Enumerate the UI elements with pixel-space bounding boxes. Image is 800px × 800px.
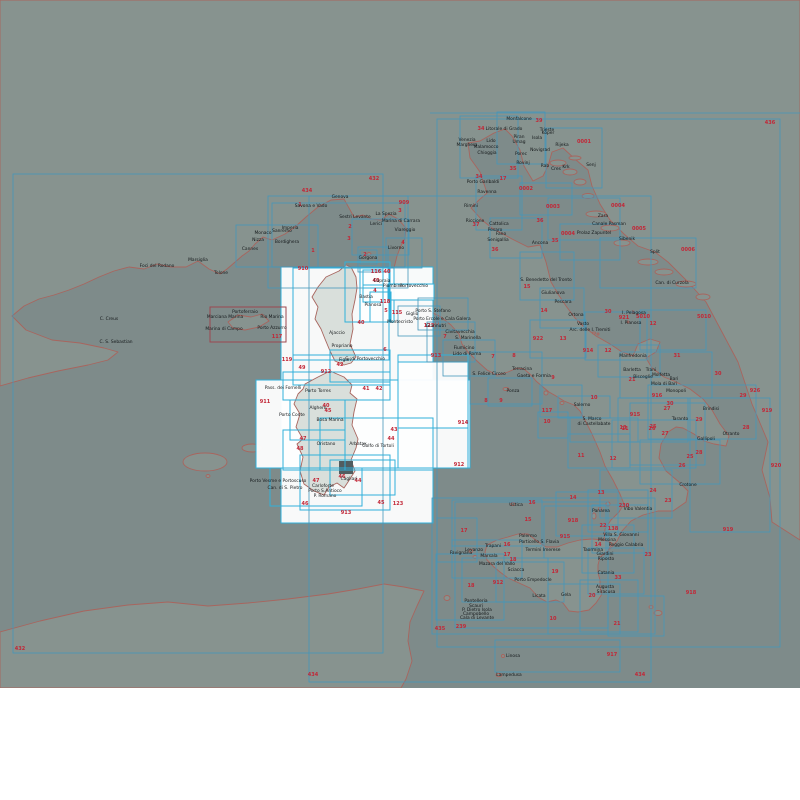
chart-number: 40 (358, 320, 365, 326)
chart-number: 10 (591, 395, 598, 401)
nautical-chart-index-map: 4324324344344344364352399179099109119129… (0, 0, 800, 688)
chart-number: 47 (300, 436, 307, 442)
place-label: Porto Conte (279, 412, 305, 418)
place-label: Bordighera (275, 239, 300, 245)
place-label: Foci del Rodano (140, 263, 175, 269)
place-label: Krk (562, 164, 570, 170)
small-island (544, 391, 548, 395)
place-label: Senigallia (487, 237, 509, 243)
place-label: Ravenna (477, 189, 497, 195)
place-label: Molfetta (652, 372, 670, 378)
chart-number: 914 (583, 348, 594, 354)
place-label: Palermo (519, 533, 537, 539)
place-label: Marsiglia (188, 257, 208, 263)
place-label: Gallipoli (697, 436, 715, 442)
chart-number: 239 (456, 624, 467, 630)
place-label: Cala di Levante (460, 615, 494, 621)
place-label: Imperia (282, 225, 299, 231)
chart-number: 0002 (519, 186, 533, 192)
chart-number: 26 (679, 463, 686, 469)
chart-number: 40 (384, 269, 391, 275)
place-label: Riccione (466, 218, 485, 224)
chart-number: 910 (298, 266, 309, 272)
place-label: Porticello S. Flavia (519, 539, 559, 545)
place-label: Propriano (332, 343, 353, 349)
place-label: Bisceglie (633, 374, 653, 380)
place-label: Favignana (450, 550, 473, 556)
chart-number: 138 (608, 526, 619, 532)
place-label: Montecristo (387, 319, 413, 325)
chart-number: 8 (484, 398, 488, 404)
chart-number: 911 (260, 399, 271, 405)
place-label: Monopoli (666, 388, 686, 394)
chart-number: 4 (373, 288, 377, 294)
place-label: Cagliari (341, 476, 358, 482)
place-label: Manfredonia (619, 353, 647, 359)
place-label: Lido di Roma (453, 351, 482, 357)
small-island (183, 453, 227, 471)
place-label: Brindisi (703, 406, 719, 412)
chart-number: 31 (674, 353, 681, 359)
chart-number: 3 (347, 236, 351, 242)
place-label: Umag (513, 139, 526, 145)
chart-number: 0003 (546, 204, 560, 210)
place-label: Marsala (480, 553, 497, 559)
place-label: Taranto (671, 416, 689, 422)
chart-number: 9 (499, 398, 503, 404)
chart-number: 23 (665, 498, 672, 504)
chart-number: 434 (302, 188, 313, 194)
chart-number: 16 (504, 542, 511, 548)
chart-number: 912 (321, 369, 332, 375)
chart-number: 123 (393, 501, 404, 507)
place-label: Porto Ercole e Cala Galera (413, 316, 471, 322)
chart-number: 432 (15, 646, 26, 652)
place-label: Litorale di Grado (486, 126, 523, 132)
place-label: Porto Empedocle (514, 577, 551, 583)
chart-number: 46 (302, 501, 309, 507)
chart-number: 918 (568, 518, 579, 524)
place-label: Ustica (509, 502, 523, 508)
place-label: Giannutri (426, 323, 446, 329)
place-label: Porto Azzurro (257, 325, 287, 331)
chart-number: 914 (458, 420, 469, 426)
place-label: Monfalcone (506, 116, 532, 122)
place-label: Gela (561, 592, 571, 598)
place-label: Sibenik (619, 236, 635, 242)
chart-number: 913 (431, 353, 442, 359)
chart-number: 24 (650, 488, 657, 494)
place-label: Portovecchio (400, 283, 429, 289)
chart-number: 20 (589, 593, 596, 599)
place-label: Bosa Marina (316, 417, 343, 423)
place-label: Termini Imerese (525, 547, 561, 553)
place-label: I. Pelagosa (622, 310, 646, 316)
place-label: Livorno (388, 245, 404, 251)
chart-number: 918 (686, 590, 697, 596)
place-label: Rio Marina (260, 314, 284, 320)
chart-number: 41 (363, 386, 370, 392)
chart-number: 30 (605, 309, 612, 315)
chart-number: 913 (341, 510, 352, 516)
place-label: Marciana Marina (207, 314, 244, 320)
place-label: Chioggia (477, 150, 497, 156)
chart-number: 434 (635, 672, 646, 678)
place-label: Siracusa (597, 589, 616, 595)
chart-number: 6 (383, 347, 387, 353)
place-label: Nizza (252, 237, 264, 243)
place-label: Otranto (723, 431, 740, 437)
place-label: Reggio Calabria (609, 542, 644, 548)
place-label: Salerno (574, 402, 591, 408)
place-label: S. Marinella (455, 335, 481, 341)
place-label: Oristano (317, 441, 336, 447)
place-label: Sciacca (508, 567, 525, 573)
chart-number: 12 (610, 456, 617, 462)
place-label: Gorgona (359, 255, 378, 261)
place-label: S. Felice Circeo (472, 371, 506, 377)
chart-number: 0006 (681, 247, 695, 253)
chart-number: 5010 (697, 314, 711, 320)
place-label: Golfo di Tortoli (362, 443, 394, 449)
chart-number: 1 (311, 248, 315, 254)
chart-number: 0004 (561, 231, 575, 237)
place-label: Prolaz Zapuntel (577, 230, 611, 236)
chart-number: 7 (491, 354, 495, 360)
place-label: Licata (532, 593, 545, 599)
chart-number: 30 (667, 401, 674, 407)
chart-number: 17 (461, 528, 468, 534)
chart-number: 36 (492, 247, 499, 253)
place-label: Civitavecchia (445, 329, 475, 335)
chart-number: 27 (662, 431, 669, 437)
small-island (502, 655, 505, 658)
place-label: Fano (496, 231, 507, 237)
place-label: Senj (586, 162, 596, 168)
place-label: Vibo Valentia (624, 506, 653, 512)
place-label: C. Creus (100, 316, 119, 322)
place-label: S. Benedetto del Tronto (520, 277, 572, 283)
place-label: Trapani (484, 543, 501, 549)
chart-number: 10 (550, 616, 557, 622)
place-label: Can. di S. Pietro (268, 485, 303, 491)
place-label: La Spezia (375, 211, 396, 217)
chart-number: 436 (765, 120, 776, 126)
chart-number: 44 (388, 436, 395, 442)
place-label: Can. di Curzola (655, 280, 689, 286)
place-label: Viareggio (395, 227, 416, 233)
chart-number: 117 (272, 334, 283, 340)
small-island (655, 269, 673, 275)
place-label: Ajaccio (329, 330, 345, 336)
place-label: Marina di Carrara (382, 218, 421, 224)
place-label: Porto S. Stefano (415, 308, 451, 314)
chart-number: 28 (743, 425, 750, 431)
chart-number: 2 (348, 224, 352, 230)
place-label: Linosa (506, 653, 520, 659)
place-label: Cannes (242, 246, 259, 252)
place-label: Bastia (359, 294, 373, 300)
small-island (206, 475, 210, 478)
place-label: Fiumicino (454, 345, 475, 351)
chart-number: 0001 (577, 139, 591, 145)
place-label: Terracina (511, 366, 532, 372)
place-label: Split (650, 249, 660, 255)
chart-number: 35 (510, 166, 517, 172)
chart-number: 14 (570, 495, 577, 501)
place-label: Savona e Vado (295, 203, 328, 209)
place-label: Rijeka (555, 142, 569, 148)
place-label: Catania (598, 570, 615, 576)
chart-number: 0005 (632, 226, 646, 232)
chart-number: 432 (369, 176, 380, 182)
small-island (696, 294, 710, 300)
chart-number: 434 (308, 672, 319, 678)
place-label: Ponza (507, 388, 520, 394)
small-island (597, 333, 599, 335)
chart-number: 12 (650, 321, 657, 327)
place-label: Mola di Bari (651, 381, 677, 387)
place-label: di Castellabate (578, 421, 611, 427)
chart-number: 915 (560, 534, 571, 540)
chart-number: 912 (493, 580, 504, 586)
chart-number: 435 (435, 626, 446, 632)
place-label: G. di Portovecchio (345, 356, 385, 362)
chart-number: 25 (687, 454, 694, 460)
chart-number: 926 (750, 388, 761, 394)
chart-number: 16 (529, 500, 536, 506)
place-label: Lampedusa (496, 672, 522, 678)
place-label: P. Romano (314, 493, 337, 499)
place-label: Porto Garibaldi (467, 179, 500, 185)
chart-number: 8 (512, 353, 516, 359)
chart-number: 17 (500, 176, 507, 182)
chart-number: 5 (384, 308, 388, 314)
chart-number: 3 (398, 208, 402, 214)
chart-number: 909 (399, 200, 410, 206)
chart-number: 22 (600, 523, 607, 529)
place-label: Monaco (254, 230, 271, 236)
place-label: I. Pianosa (621, 320, 642, 326)
place-label: Barletta (623, 367, 641, 373)
chart-number: 11 (578, 453, 585, 459)
chart-number: 13 (620, 425, 627, 431)
place-label: Isola (532, 135, 542, 141)
chart-number: 36 (537, 218, 544, 224)
chart-number: 115 (392, 310, 403, 316)
place-label: Cattolica (489, 221, 509, 227)
chart-number: 15 (524, 284, 531, 290)
chart-number: 14 (541, 308, 548, 314)
place-label: Rab (541, 163, 550, 169)
place-label: Pianosa (365, 302, 382, 308)
place-label: Lido (486, 138, 495, 144)
small-island (638, 259, 658, 265)
small-island (560, 402, 564, 405)
place-label: Giulianova (541, 290, 565, 296)
place-label: Riposto (598, 556, 615, 562)
place-label: Canale Pasman (592, 221, 626, 227)
chart-number: 49 (299, 365, 306, 371)
place-label: Porto Vesme e Portoscuso (250, 478, 307, 484)
chart-number: 48 (297, 446, 304, 452)
chart-number: 12 (605, 348, 612, 354)
chart-number: 13 (598, 490, 605, 496)
chart-number: 26 (649, 426, 656, 432)
place-label: Novigrad (530, 147, 550, 153)
place-label: Porto Torres (305, 388, 332, 394)
chart-number: 912 (454, 462, 465, 468)
chart-number: 34 (478, 126, 485, 132)
chart-number: 10 (544, 419, 551, 425)
place-label: C. S. Sebastian (99, 339, 132, 345)
place-label: Gaeta e Formia (517, 373, 551, 379)
chart-number: 28 (696, 450, 703, 456)
chart-number: 29 (696, 417, 703, 423)
place-label: Rovinj (516, 160, 529, 166)
place-label: Mazara del Vallo (479, 561, 515, 567)
chart-number: 30 (715, 371, 722, 377)
chart-number: 15 (525, 517, 532, 523)
place-label: Vasto (577, 321, 589, 327)
chart-number: 9 (551, 375, 555, 381)
chart-number: 920 (771, 463, 782, 469)
chart-number: 21 (614, 621, 621, 627)
place-label: Crotone (679, 482, 697, 488)
place-label: Tolone (213, 270, 228, 276)
chart-number: 45 (378, 500, 385, 506)
place-label: Koper (542, 130, 555, 136)
place-label: Lerici (370, 221, 382, 227)
place-label: Malamocco (474, 144, 499, 150)
chart-index-page: { "map": { "description": "Index of Ital… (0, 0, 800, 800)
chart-number: 42 (376, 386, 383, 392)
place-label: Alghero (310, 405, 327, 411)
chart-number: 13 (560, 336, 567, 342)
chart-number: 29 (740, 393, 747, 399)
chart-number: 917 (607, 652, 618, 658)
chart-number: 43 (391, 427, 398, 433)
chart-number: 116 (371, 269, 382, 275)
chart-number: 39 (536, 118, 543, 124)
chart-number: 18 (468, 583, 475, 589)
chart-number: 916 (652, 393, 663, 399)
chart-number: 922 (533, 336, 544, 342)
place-label: Zara (598, 213, 609, 219)
chart-number: 915 (630, 412, 641, 418)
place-label: Panarea (592, 508, 610, 514)
place-label: Cres (551, 166, 561, 172)
place-label: Porec (515, 151, 528, 157)
small-island (444, 596, 450, 601)
place-label: Arc. delle I. Tremiti (570, 327, 611, 333)
chart-number: 35 (552, 238, 559, 244)
place-label: Ortona (568, 312, 583, 318)
place-label: Pescara (554, 299, 571, 305)
place-label: Genova (332, 194, 349, 200)
place-label: Ancona (532, 240, 549, 246)
chart-number: 23 (645, 552, 652, 558)
place-label: Sestri Levante (339, 214, 371, 220)
chart-number: 33 (615, 575, 622, 581)
chart-number: 919 (723, 527, 734, 533)
chart-number: 19 (552, 569, 559, 575)
chart-number: 119 (282, 357, 293, 363)
chart-number: 117 (542, 408, 553, 414)
place-label: Rimini (464, 203, 478, 209)
small-island (574, 179, 586, 185)
chart-number: 919 (762, 408, 773, 414)
place-label: Pass. dei Fornelli (265, 385, 302, 391)
small-island (569, 156, 581, 160)
place-label: Marina di Campo (205, 326, 243, 332)
chart-number: 0004 (611, 203, 625, 209)
